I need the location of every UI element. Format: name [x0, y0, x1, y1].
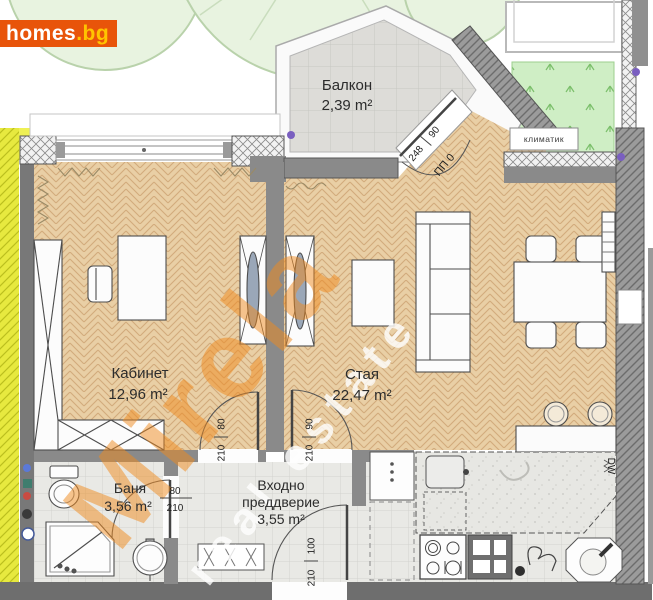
svg-text:100: 100: [307, 537, 318, 554]
ac-label-text: климатик: [524, 134, 564, 144]
coffee-table-symbol: [352, 260, 394, 326]
floorplan-screenshot: Mirela real estate Балкон 2,39 m² Кабине…: [0, 0, 653, 600]
sofa-symbol: [416, 212, 470, 372]
svg-text:80: 80: [217, 418, 228, 430]
bathroom-area: 3,56 m²: [104, 498, 152, 514]
marker-dot: [617, 153, 625, 161]
panel-symbol: [286, 236, 314, 346]
balcony-area: 2,39 m²: [322, 97, 373, 114]
oven-symbol: [468, 535, 512, 579]
logo-tld: .bg: [76, 22, 109, 45]
hall-area: 3,55 m²: [257, 511, 305, 527]
office-label: Кабинет: [111, 365, 168, 382]
svg-text:90: 90: [305, 418, 316, 430]
coat-rack-symbol: [198, 544, 264, 570]
svg-text:DW: DW: [605, 458, 616, 475]
drain-knob: [515, 566, 525, 576]
svg-text:210: 210: [167, 503, 184, 514]
marker-dot: [632, 68, 640, 76]
dining-radiator-symbol: [602, 212, 615, 272]
balcony-label: Балкон: [322, 77, 372, 94]
shower-symbol: [46, 522, 114, 576]
terrace-outline: [506, 0, 622, 52]
office-area: 12,96 m²: [108, 386, 167, 403]
living-label: Стая: [345, 366, 379, 383]
logo-brand: homes: [6, 22, 76, 45]
cabinet-symbol: [58, 420, 164, 450]
homes-bg-logo: homes.bg: [0, 20, 117, 47]
panel-symbol: [240, 236, 266, 344]
office-window: [56, 140, 232, 160]
floorplan-drawing: Mirela real estate Балкон 2,39 m² Кабине…: [0, 0, 653, 600]
svg-text:80: 80: [169, 486, 181, 497]
chair-symbol: [88, 266, 112, 302]
living-area: 22,47 m²: [332, 387, 391, 404]
svg-text:210: 210: [307, 569, 318, 586]
cooktop-symbol: [420, 535, 466, 579]
dishwasher-label: DW: [605, 458, 616, 475]
svg-text:210: 210: [305, 444, 316, 461]
fridge-symbol: [370, 452, 414, 500]
hall-label-line1: Входно: [257, 477, 304, 493]
dining-table-symbol: [514, 262, 606, 322]
toilet-symbol: [49, 466, 79, 508]
hall-fixtures: [198, 544, 264, 570]
svg-text:210: 210: [217, 444, 228, 461]
marker-dot: [287, 131, 295, 139]
hall-label-line2: преддверие: [242, 494, 320, 510]
corner-sink-symbol: [566, 538, 622, 582]
bathroom-label: Баня: [114, 480, 146, 496]
ac-label: климатик: [510, 128, 578, 150]
wardrobe-symbol: [34, 240, 62, 450]
